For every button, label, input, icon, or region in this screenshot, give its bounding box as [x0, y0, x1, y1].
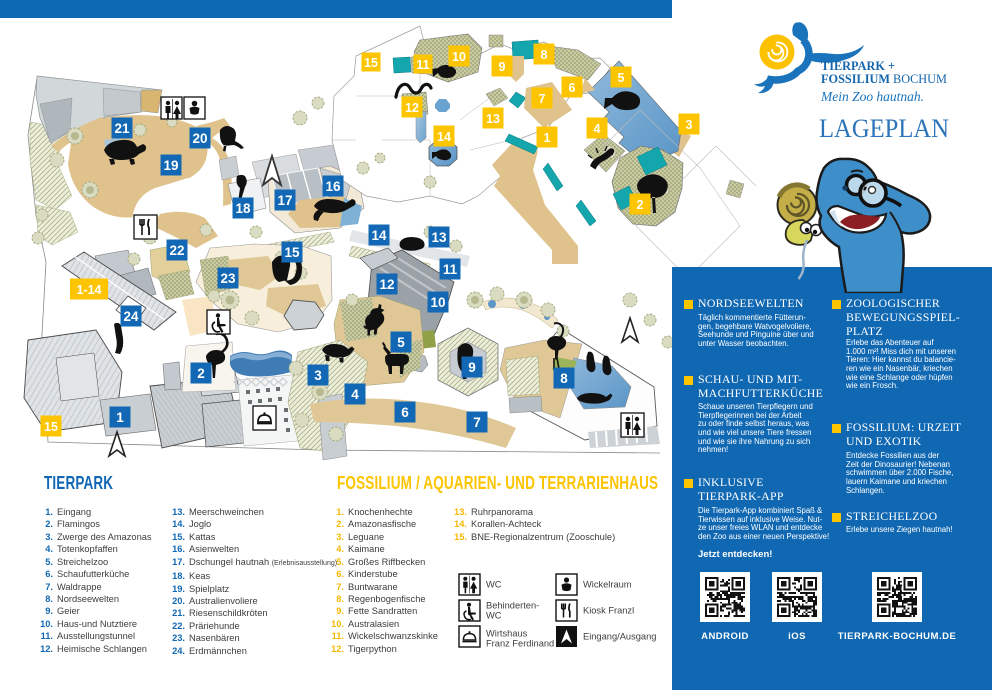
svg-text:5: 5	[397, 335, 405, 350]
svg-text:13: 13	[486, 112, 500, 126]
svg-text:1: 1	[116, 410, 124, 425]
svg-text:13: 13	[431, 230, 447, 245]
svg-text:16: 16	[325, 179, 341, 194]
svg-text:7: 7	[539, 92, 546, 106]
svg-text:FOSSILIUM BOCHUM: FOSSILIUM BOCHUM	[821, 71, 947, 86]
svg-text:8: 8	[560, 371, 568, 386]
svg-text:17: 17	[277, 193, 292, 208]
svg-text:3: 3	[314, 368, 322, 383]
svg-text:6: 6	[569, 81, 576, 95]
svg-text:8: 8	[541, 48, 548, 62]
svg-text:11: 11	[416, 58, 429, 72]
svg-text:Franz Ferdinand: Franz Ferdinand	[486, 639, 554, 649]
svg-text:12: 12	[405, 101, 419, 115]
svg-text:4: 4	[351, 387, 359, 402]
svg-text:3: 3	[686, 118, 693, 132]
svg-text:WC: WC	[486, 611, 502, 621]
svg-text:22: 22	[169, 243, 184, 258]
svg-text:Mein Zoo hautnah.: Mein Zoo hautnah.	[820, 89, 924, 104]
svg-text:Wirtshaus: Wirtshaus	[486, 629, 528, 639]
svg-text:18: 18	[235, 201, 251, 216]
svg-text:11: 11	[443, 262, 458, 277]
svg-text:24: 24	[123, 309, 139, 324]
svg-text:9: 9	[468, 360, 476, 375]
svg-text:1: 1	[544, 131, 551, 145]
svg-text:15: 15	[364, 56, 378, 70]
svg-text:WC: WC	[486, 580, 502, 590]
svg-text:15: 15	[284, 245, 300, 260]
svg-text:15: 15	[44, 420, 58, 434]
svg-text:10: 10	[430, 295, 445, 310]
svg-text:Eingang/Ausgang: Eingang/Ausgang	[583, 632, 656, 642]
svg-text:21: 21	[114, 121, 130, 136]
svg-text:1-14: 1-14	[76, 283, 101, 297]
svg-text:6: 6	[401, 405, 409, 420]
svg-text:Wickelraum: Wickelraum	[583, 580, 632, 590]
svg-text:LAGEPLAN: LAGEPLAN	[819, 114, 949, 140]
svg-text:2: 2	[197, 366, 205, 381]
svg-text:Behinderten-: Behinderten-	[486, 601, 539, 611]
svg-text:20: 20	[192, 131, 207, 146]
svg-text:10: 10	[452, 50, 466, 64]
svg-text:4: 4	[594, 122, 601, 136]
svg-text:12: 12	[379, 277, 394, 292]
svg-text:9: 9	[499, 60, 506, 74]
svg-text:14: 14	[437, 130, 451, 144]
svg-text:23: 23	[220, 271, 236, 286]
svg-text:5: 5	[618, 71, 625, 85]
svg-text:2: 2	[637, 198, 644, 212]
svg-text:14: 14	[371, 228, 387, 243]
svg-text:19: 19	[163, 158, 178, 173]
svg-text:Kiosk Franzl: Kiosk Franzl	[583, 606, 634, 616]
svg-text:7: 7	[473, 415, 481, 430]
